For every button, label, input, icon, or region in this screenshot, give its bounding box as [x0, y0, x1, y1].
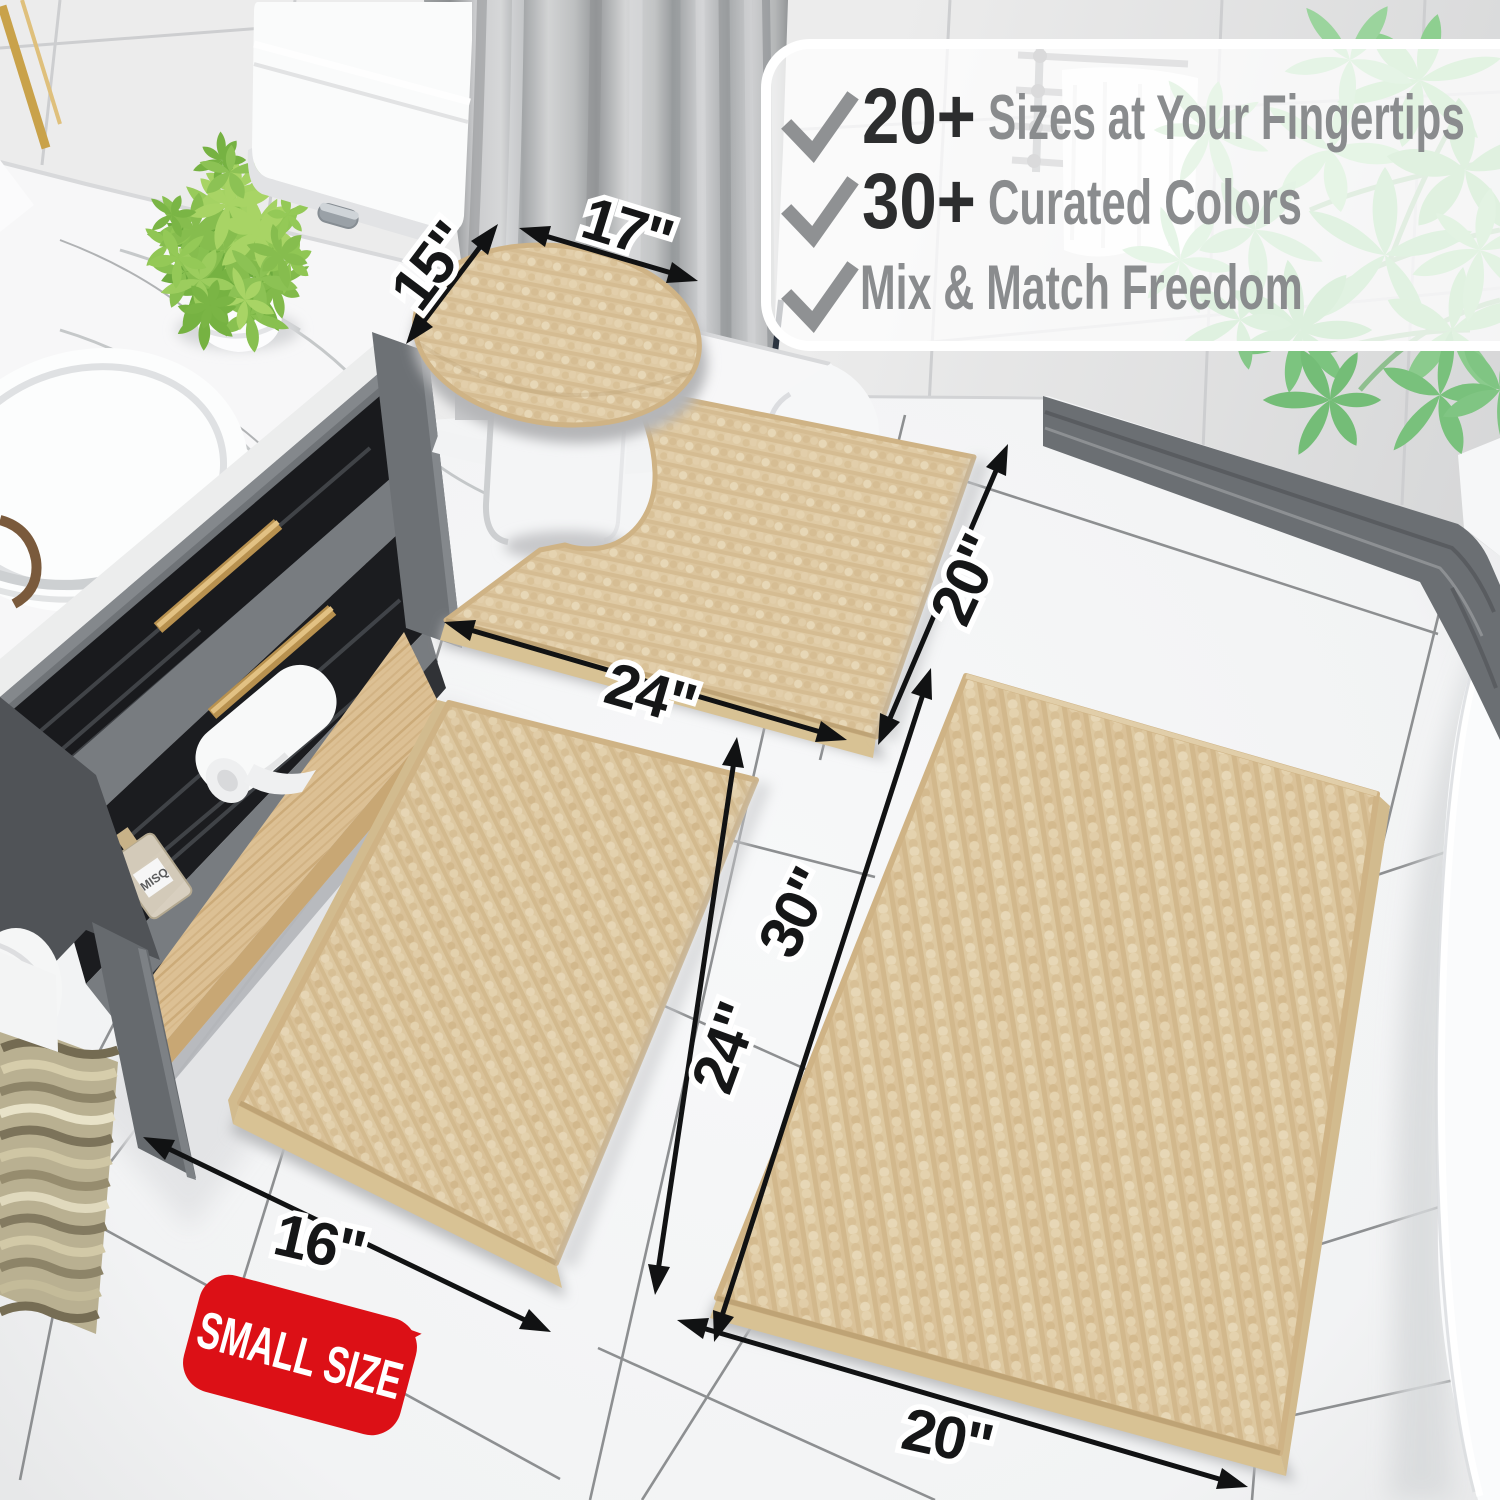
svg-text:Curated Colors: Curated Colors [988, 168, 1302, 238]
svg-text:30+: 30+ [862, 157, 976, 245]
svg-text:Mix & Match Freedom: Mix & Match Freedom [860, 253, 1303, 323]
svg-text:20+: 20+ [862, 72, 976, 160]
svg-text:Sizes at Your Fingertips: Sizes at Your Fingertips [988, 83, 1465, 153]
